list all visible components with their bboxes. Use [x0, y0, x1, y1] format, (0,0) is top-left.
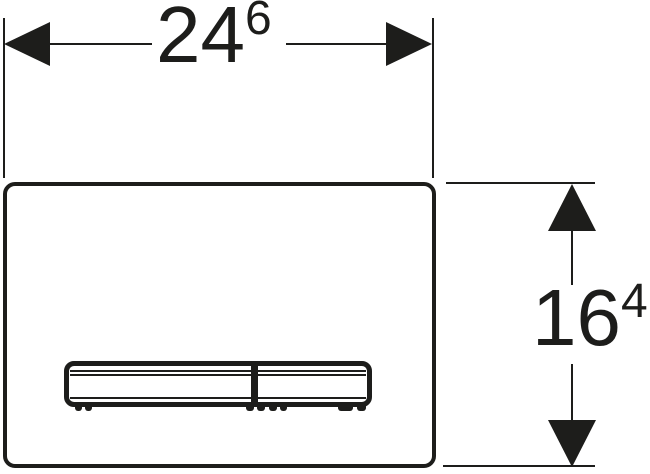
button-bottom-groove-line [70, 397, 366, 399]
arrowhead-down-icon [548, 420, 596, 467]
button-divider [251, 361, 258, 407]
width-dimension-line-right-segment [286, 43, 388, 45]
button-top-groove-line-1 [70, 370, 366, 372]
width-dimension-label: 246 [156, 0, 272, 75]
flush-plate-outline [3, 182, 436, 468]
width-dimension-superscript: 6 [245, 0, 272, 45]
width-extension-line-right [432, 18, 434, 178]
height-dimension-line-bottom-segment [571, 364, 573, 422]
technical-drawing-canvas: 246 164 [0, 0, 650, 474]
width-dimension-value: 24 [156, 0, 245, 79]
flush-button-assembly [64, 361, 372, 407]
height-dimension-superscript: 4 [621, 275, 648, 328]
width-dimension-line-left-segment [48, 43, 152, 45]
arrowhead-up-icon [548, 184, 596, 231]
arrowhead-right-icon [386, 22, 432, 66]
arrowhead-left-icon [4, 22, 50, 66]
button-top-groove-line-2 [70, 374, 366, 376]
height-dimension-value: 16 [532, 273, 621, 362]
height-dimension-label: 164 [532, 278, 648, 358]
